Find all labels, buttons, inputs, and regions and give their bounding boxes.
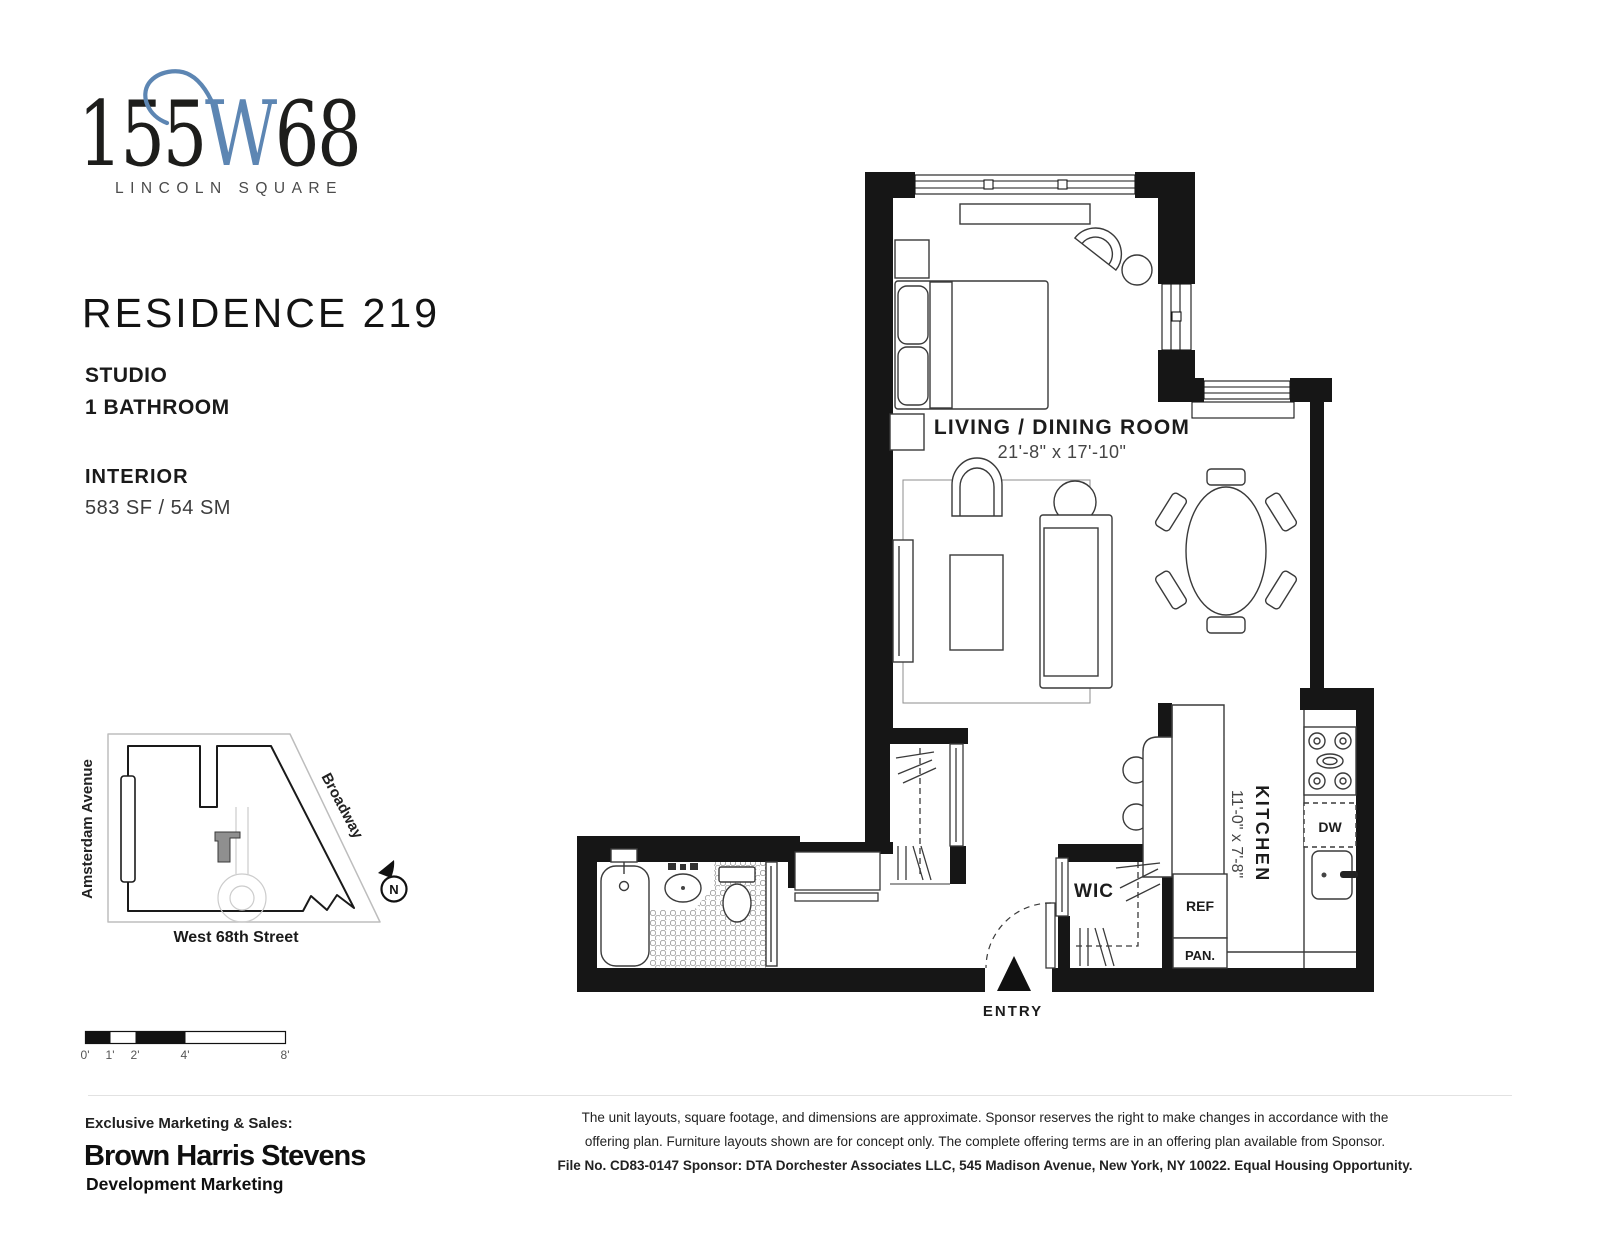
scale-bar: 0' 1' 2' 4' 8' bbox=[80, 1028, 300, 1066]
wic-label: WIC bbox=[1074, 881, 1114, 902]
building-bay bbox=[121, 776, 135, 882]
scale-tick-8: 8' bbox=[281, 1048, 290, 1062]
bathroom-sink bbox=[665, 863, 701, 902]
nightstand bbox=[890, 414, 924, 450]
entry-door-swing bbox=[986, 903, 1051, 968]
nightstand bbox=[895, 240, 929, 278]
interior-label: INTERIOR bbox=[85, 466, 189, 489]
disclaimer: The unit layouts, square footage, and di… bbox=[530, 1106, 1440, 1178]
logo-number-prefix: 155 bbox=[78, 82, 205, 187]
area-value: 583 SF / 54 SM bbox=[85, 497, 231, 520]
living-room-dims: 21'-8" x 17'-10" bbox=[998, 442, 1127, 462]
street-label-bottom: West 68th Street bbox=[173, 929, 299, 946]
site-map: Amsterdam Avenue Broadway West 68th Stre… bbox=[78, 712, 418, 952]
page-title: RESIDENCE 219 bbox=[82, 290, 440, 337]
brokerage-logo: Brown Harris Stevens bbox=[84, 1140, 365, 1173]
entry-label: ENTRY bbox=[983, 1003, 1043, 1020]
scale-tick-4: 4' bbox=[181, 1048, 190, 1062]
entry bbox=[986, 903, 1055, 991]
marketing-label: Exclusive Marketing & Sales: bbox=[85, 1115, 293, 1132]
sofa bbox=[1040, 515, 1112, 688]
logo-subtitle: LINCOLN SQUARE bbox=[115, 180, 343, 198]
brokerage-division: Development Marketing bbox=[86, 1174, 283, 1195]
coffee-table bbox=[950, 555, 1003, 650]
kitchen-sink bbox=[1312, 851, 1358, 899]
north-arrow: N bbox=[378, 860, 407, 902]
bathroom-count-label: 1 BATHROOM bbox=[85, 396, 230, 420]
north-label: N bbox=[389, 882, 398, 897]
kitchen-label: KITCHEN bbox=[1252, 785, 1272, 883]
tv-console bbox=[893, 540, 913, 662]
disclaimer-line-3: File No. CD83-0147 Sponsor: DTA Dorchest… bbox=[530, 1154, 1440, 1178]
street-label-left: Amsterdam Avenue bbox=[79, 759, 96, 899]
bathtub bbox=[601, 849, 649, 966]
bathroom-door bbox=[766, 862, 777, 966]
disclaimer-line-1: The unit layouts, square footage, and di… bbox=[530, 1106, 1440, 1130]
foyer-console bbox=[795, 852, 880, 901]
logo-number-suffix: 68 bbox=[275, 82, 360, 187]
living-room-label: LIVING / DINING ROOM bbox=[934, 416, 1190, 439]
disclaimer-line-2: offering plan. Furniture layouts shown a… bbox=[530, 1130, 1440, 1154]
logo-letter-w: W bbox=[205, 82, 275, 187]
building-logo: 155W68 bbox=[78, 96, 359, 174]
unit-type-label: STUDIO bbox=[85, 364, 167, 388]
armchair bbox=[952, 458, 1002, 516]
lounge-chair bbox=[1075, 218, 1132, 271]
kitchen-dims: 11'-0" x 7'-8" bbox=[1228, 790, 1245, 878]
dw-label: DW bbox=[1318, 819, 1342, 835]
scale-tick-0: 0' bbox=[81, 1048, 90, 1062]
bed bbox=[895, 281, 1048, 409]
pan-label: PAN. bbox=[1185, 948, 1215, 963]
footer-divider bbox=[88, 1095, 1512, 1096]
entry-door-leaf bbox=[1046, 903, 1055, 968]
scale-tick-2: 2' bbox=[131, 1048, 140, 1062]
floor-plan: LIVING / DINING ROOM 21'-8" x 17'-10" KI… bbox=[560, 150, 1420, 1030]
side-table bbox=[1122, 255, 1152, 285]
entry-arrow-icon bbox=[997, 956, 1031, 991]
stove bbox=[1304, 727, 1356, 795]
scale-tick-1: 1' bbox=[106, 1048, 115, 1062]
bathroom bbox=[601, 849, 777, 968]
dresser bbox=[960, 204, 1090, 224]
kitchen-island bbox=[1143, 705, 1224, 877]
ref-label: REF bbox=[1186, 898, 1214, 914]
dining-table bbox=[1186, 487, 1266, 615]
